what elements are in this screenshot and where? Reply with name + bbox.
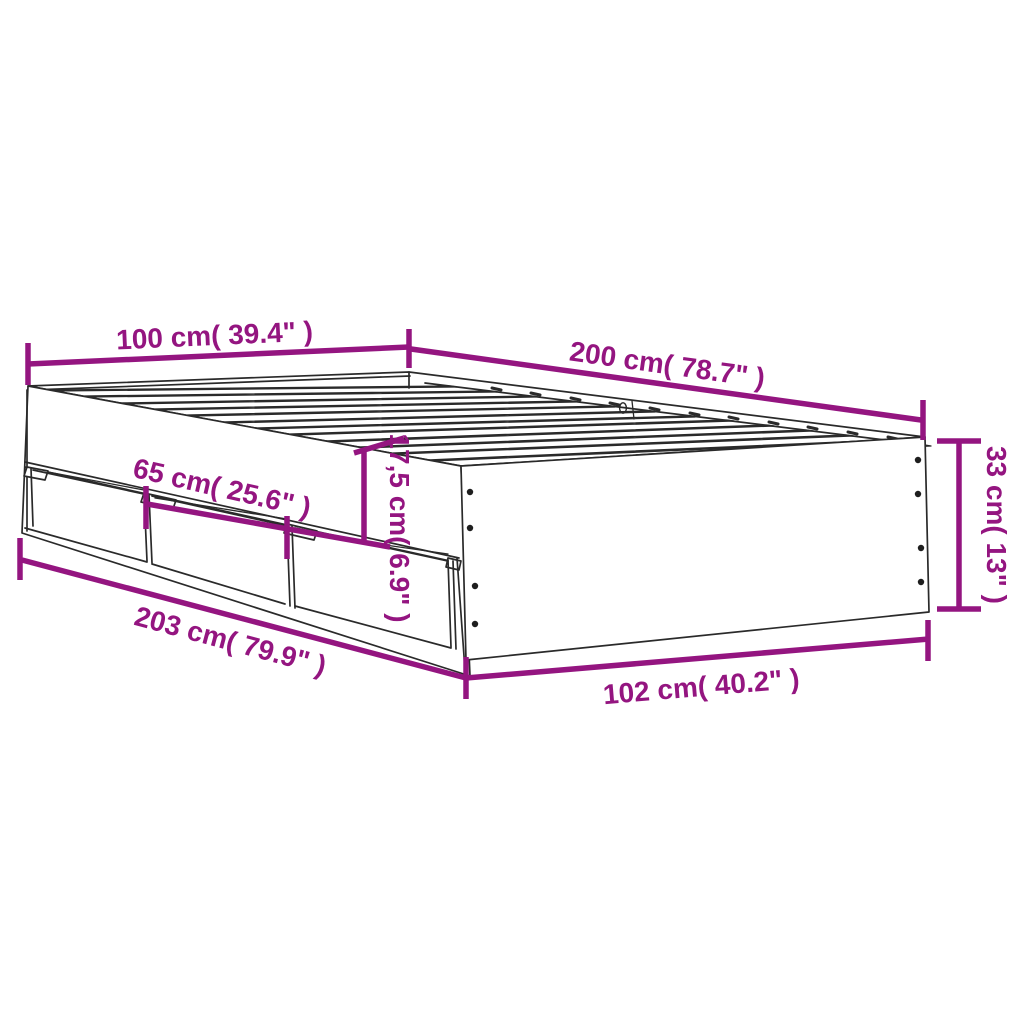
screw-hole-dot <box>915 457 921 463</box>
dim-label-overall-width: 102 cm( 40.2" ) <box>602 663 801 710</box>
screw-hole-dot <box>467 489 473 495</box>
dim-label-head-width: 100 cm( 39.4" ) <box>115 316 313 356</box>
screw-hole-dot <box>918 545 924 551</box>
screw-hole-dot <box>918 579 924 585</box>
screw-hole-dot <box>915 491 921 497</box>
dim-frame-height <box>937 441 981 609</box>
dim-label-frame-height: 33 cm( 13" ) <box>981 446 1012 604</box>
screw-hole-dot <box>467 525 473 531</box>
dim-label-rail-height: 17,5 cm( 6.9" ) <box>384 433 415 622</box>
bed-dimension-diagram: 100 cm( 39.4" ) 200 cm( 78.7" ) 33 cm( 1… <box>0 0 1024 1024</box>
screw-hole-dot <box>472 583 478 589</box>
footboard-panel <box>461 437 929 660</box>
screw-hole-dot <box>472 621 478 627</box>
diagram-canvas: 100 cm( 39.4" ) 200 cm( 78.7" ) 33 cm( 1… <box>0 0 1024 1024</box>
